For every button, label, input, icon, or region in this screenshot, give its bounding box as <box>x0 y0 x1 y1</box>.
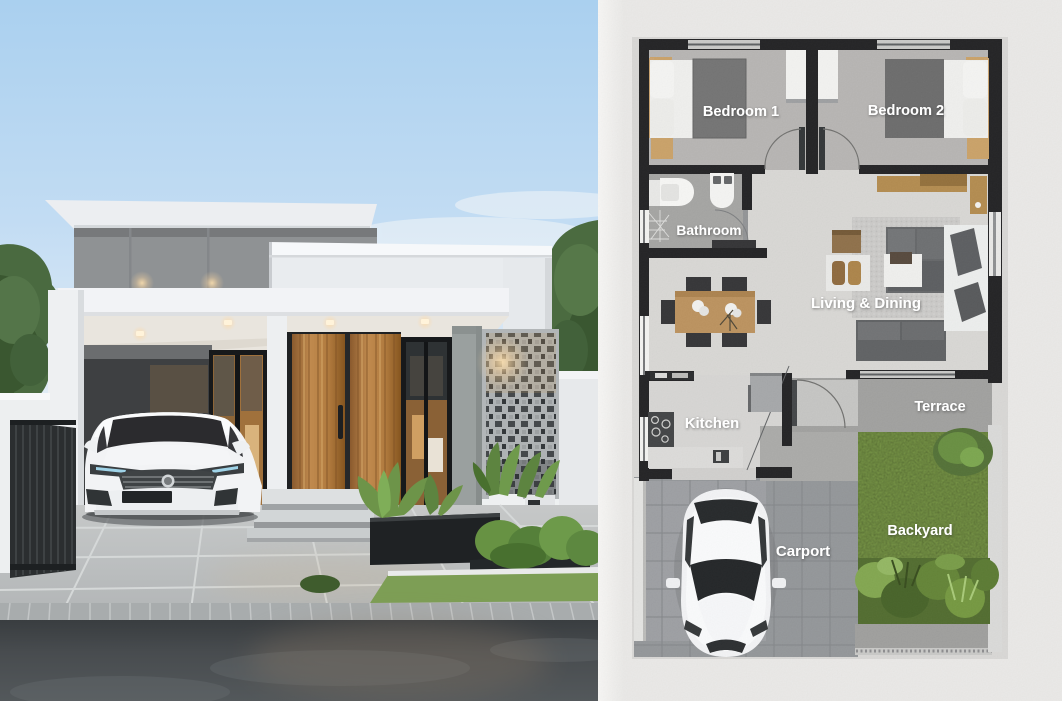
svg-text:Backyard: Backyard <box>887 523 952 539</box>
svg-text:Living & Dining: Living & Dining <box>811 295 921 312</box>
svg-text:Kitchen: Kitchen <box>685 416 739 432</box>
svg-text:Bathroom: Bathroom <box>676 223 741 238</box>
svg-text:Carport: Carport <box>776 543 830 560</box>
svg-text:Terrace: Terrace <box>914 399 965 415</box>
svg-text:Bedroom 1: Bedroom 1 <box>703 104 779 120</box>
svg-text:Bedroom 2: Bedroom 2 <box>868 103 944 119</box>
